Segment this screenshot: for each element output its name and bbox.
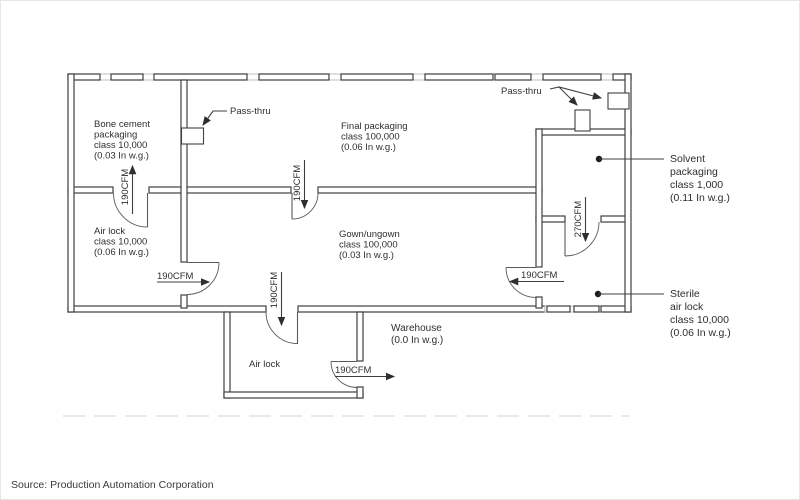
pass-thru-box-right-wall bbox=[608, 93, 629, 109]
svg-text:class 100,000: class 100,000 bbox=[339, 240, 398, 251]
pass-thru-right-callout: Pass-thru bbox=[501, 86, 601, 105]
solvent-callout: Solvent packaging class 1,000 (0.11 In w… bbox=[596, 153, 730, 204]
pass-thru-box-solvent-wall bbox=[575, 110, 590, 131]
svg-text:(0.06 In w.g.): (0.06 In w.g.) bbox=[341, 142, 396, 153]
top-exterior-wall bbox=[68, 74, 631, 80]
cfm-label-bone-cement: 190CFM bbox=[120, 169, 131, 206]
cfm-label-airlock-west: 190CFM bbox=[157, 271, 194, 282]
svg-text:class 10,000: class 10,000 bbox=[670, 314, 729, 326]
room-label-bone-cement: Bone cement packaging class 10,000 (0.03… bbox=[94, 119, 150, 162]
svg-text:Warehouse: Warehouse bbox=[391, 323, 442, 334]
right-exterior-wall bbox=[625, 74, 631, 312]
svg-text:(0.06 In w.g.): (0.06 In w.g.) bbox=[670, 327, 731, 339]
south-exterior-wall bbox=[68, 306, 631, 312]
room-label-air-lock-annex: Air lock bbox=[249, 359, 280, 370]
svg-text:Gown/ungown: Gown/ungown bbox=[339, 229, 400, 240]
pass-thru-left-callout: Pass-thru bbox=[203, 106, 271, 125]
svg-text:(0.03 In w.g.): (0.03 In w.g.) bbox=[339, 250, 394, 261]
svg-text:class 10,000: class 10,000 bbox=[94, 237, 147, 248]
svg-text:(0.03 In w.g.): (0.03 In w.g.) bbox=[94, 151, 149, 162]
pass-thru-right-label: Pass-thru bbox=[501, 86, 542, 97]
svg-text:(0.0 In w.g.): (0.0 In w.g.) bbox=[391, 335, 443, 346]
svg-text:air lock: air lock bbox=[670, 301, 704, 313]
cleanroom-floor-plan: Pass-thru Pass-thru 190CFM 190CFM 190CFM… bbox=[1, 1, 799, 499]
room-labels: Bone cement packaging class 10,000 (0.03… bbox=[94, 119, 443, 370]
left-exterior-wall bbox=[68, 74, 74, 312]
svg-text:packaging: packaging bbox=[94, 130, 137, 141]
source-credit: Source: Production Automation Corporatio… bbox=[11, 479, 214, 491]
room-label-gown-ungown: Gown/ungown class 100,000 (0.03 In w.g.) bbox=[339, 229, 400, 261]
annex-walls bbox=[224, 312, 363, 398]
svg-text:Air lock: Air lock bbox=[94, 226, 125, 237]
pass-thru-left-arrow bbox=[203, 111, 227, 125]
floor-plan-figure: Pass-thru Pass-thru 190CFM 190CFM 190CFM… bbox=[0, 0, 800, 500]
room-label-warehouse: Warehouse (0.0 In w.g.) bbox=[391, 323, 443, 346]
svg-text:packaging: packaging bbox=[670, 166, 718, 178]
svg-text:(0.06 In w.g.): (0.06 In w.g.) bbox=[94, 247, 149, 258]
pass-thru-box-left bbox=[182, 128, 204, 144]
svg-text:class 1,000: class 1,000 bbox=[670, 179, 723, 191]
svg-text:Air lock: Air lock bbox=[249, 359, 280, 370]
room-label-final-packaging: Final packaging class 100,000 (0.06 In w… bbox=[341, 121, 408, 153]
svg-text:Bone cement: Bone cement bbox=[94, 119, 150, 130]
svg-text:Sterile: Sterile bbox=[670, 288, 700, 300]
cfm-label-solvent-sterile: 270CFM bbox=[573, 201, 584, 238]
sterile-callout: Sterile air lock class 10,000 (0.06 In w… bbox=[595, 288, 731, 339]
cfm-label-final-gown: 190CFM bbox=[292, 165, 303, 202]
pass-thru-right-arrow-1 bbox=[550, 87, 601, 98]
svg-text:class 10,000: class 10,000 bbox=[94, 140, 147, 151]
room-label-air-lock-west: Air lock class 10,000 (0.06 In w.g.) bbox=[94, 226, 149, 258]
pass-thru-boxes bbox=[182, 93, 630, 144]
cfm-label-annex-warehouse: 190CFM bbox=[335, 365, 372, 376]
cfm-label-gown-annex: 190CFM bbox=[269, 272, 280, 309]
svg-text:class 100,000: class 100,000 bbox=[341, 132, 400, 143]
pass-thru-left-label: Pass-thru bbox=[230, 106, 271, 117]
svg-text:(0.11 In w.g.): (0.11 In w.g.) bbox=[670, 192, 730, 204]
svg-text:Final packaging: Final packaging bbox=[341, 121, 408, 132]
cfm-label-sterile-gown: 190CFM bbox=[521, 270, 558, 281]
svg-text:Solvent: Solvent bbox=[670, 153, 705, 165]
